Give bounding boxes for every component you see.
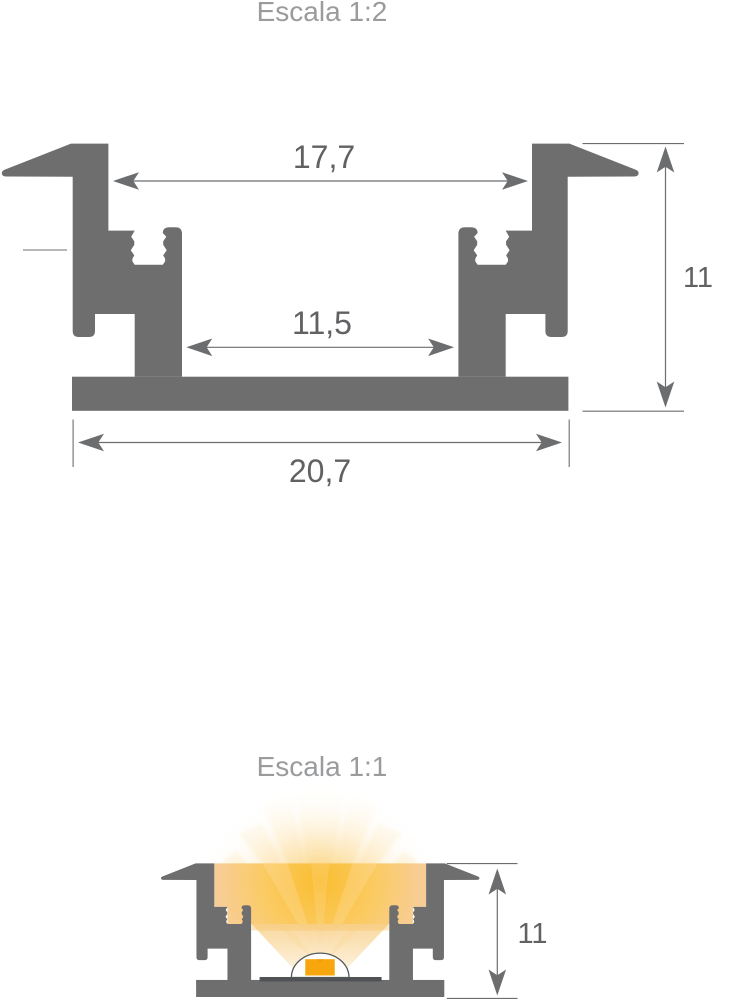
svg-text:20,7: 20,7 — [289, 453, 351, 489]
svg-text:17,7: 17,7 — [293, 139, 355, 175]
svg-text:11: 11 — [517, 918, 547, 950]
svg-text:Escala 1:1: Escala 1:1 — [257, 751, 388, 782]
svg-text:11: 11 — [683, 262, 713, 294]
svg-text:Escala 1:2: Escala 1:2 — [257, 0, 388, 27]
svg-text:11,5: 11,5 — [292, 305, 352, 341]
